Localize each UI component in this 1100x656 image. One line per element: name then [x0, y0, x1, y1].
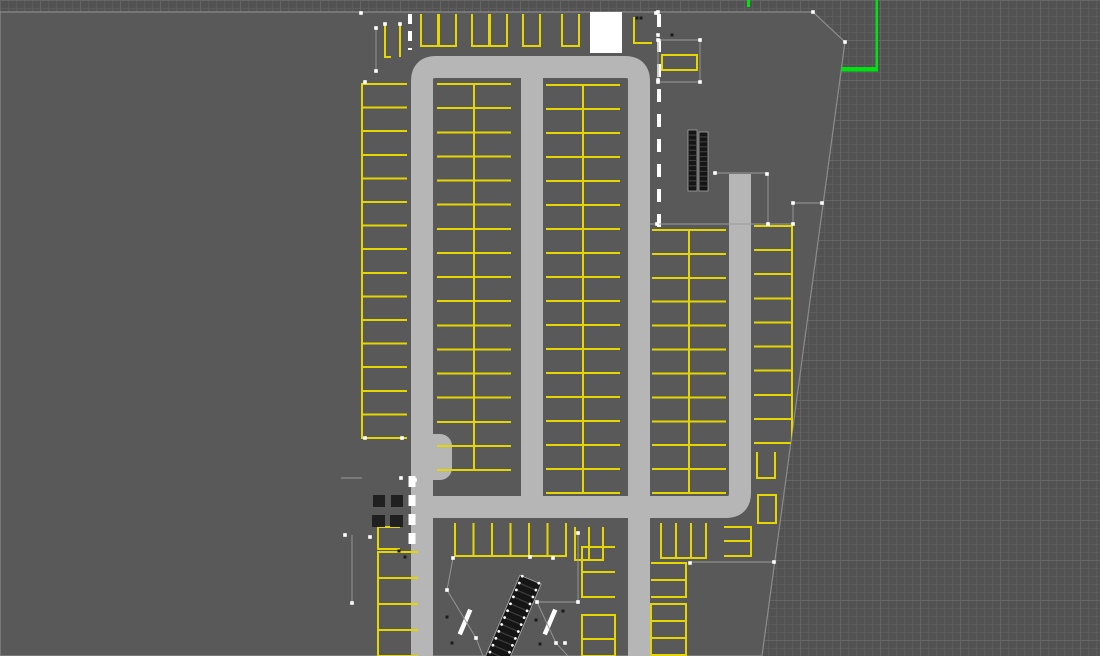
vertex-handle[interactable]	[563, 641, 567, 645]
vertex-handle[interactable]	[811, 10, 815, 14]
vertex-handle[interactable]	[791, 201, 795, 205]
vertex-handle[interactable]	[713, 171, 717, 175]
vertex-handle[interactable]	[398, 22, 402, 26]
debris-mark	[446, 616, 449, 619]
debris-mark	[640, 17, 643, 20]
structural-column[interactable]	[391, 495, 403, 507]
vertex-handle[interactable]	[688, 561, 692, 565]
structural-column[interactable]	[390, 515, 403, 527]
vertex-handle[interactable]	[474, 636, 478, 640]
debris-mark	[539, 643, 542, 646]
debris-mark	[404, 556, 407, 559]
vertex-handle[interactable]	[350, 601, 354, 605]
vertex-handle[interactable]	[765, 172, 769, 176]
vertex-handle[interactable]	[399, 476, 403, 480]
vertex-handle[interactable]	[766, 222, 770, 226]
cad-viewport[interactable]	[0, 0, 1100, 656]
structural-column[interactable]	[372, 515, 385, 527]
vertex-handle[interactable]	[368, 535, 372, 539]
vertex-handle[interactable]	[445, 588, 449, 592]
vertex-handle[interactable]	[363, 436, 367, 440]
vertex-handle[interactable]	[791, 222, 795, 226]
debris-mark	[398, 550, 401, 553]
vertex-handle[interactable]	[359, 11, 363, 15]
vertex-handle[interactable]	[656, 80, 660, 84]
debris-mark	[535, 619, 538, 622]
vertex-handle[interactable]	[843, 40, 847, 44]
structural-column[interactable]	[373, 495, 385, 507]
vertex-handle[interactable]	[383, 22, 387, 26]
vertex-handle[interactable]	[554, 641, 558, 645]
plan-drawing[interactable]	[0, 0, 1100, 656]
debris-mark	[562, 610, 565, 613]
vertex-handle[interactable]	[698, 80, 702, 84]
vertex-handle[interactable]	[374, 26, 378, 30]
axis-line-green	[876, 0, 879, 70]
vertex-handle[interactable]	[451, 556, 455, 560]
vertex-handle[interactable]	[363, 80, 367, 84]
vertex-handle[interactable]	[655, 222, 659, 226]
vertex-handle[interactable]	[820, 201, 824, 205]
vertex-handle[interactable]	[343, 533, 347, 537]
vertex-handle[interactable]	[698, 38, 702, 42]
vertex-handle[interactable]	[576, 600, 580, 604]
vertex-handle[interactable]	[656, 10, 660, 14]
drive-aisle-turnout[interactable]	[419, 434, 452, 480]
vertex-handle[interactable]	[535, 600, 539, 604]
vertex-handle[interactable]	[528, 555, 532, 559]
vertex-handle[interactable]	[576, 531, 580, 535]
vertex-handle[interactable]	[400, 436, 404, 440]
debris-mark	[636, 17, 639, 20]
debris-mark	[671, 34, 674, 37]
vertex-handle[interactable]	[551, 556, 555, 560]
vertex-handle[interactable]	[656, 38, 660, 42]
vertex-handle[interactable]	[772, 560, 776, 564]
elevator-core[interactable]	[590, 12, 622, 53]
axis-line-green	[747, 0, 750, 7]
debris-mark	[451, 642, 454, 645]
vertex-handle[interactable]	[656, 33, 660, 37]
axis-line-green	[841, 67, 878, 72]
vertex-handle[interactable]	[374, 69, 378, 73]
vertex-handle[interactable]	[413, 478, 417, 482]
